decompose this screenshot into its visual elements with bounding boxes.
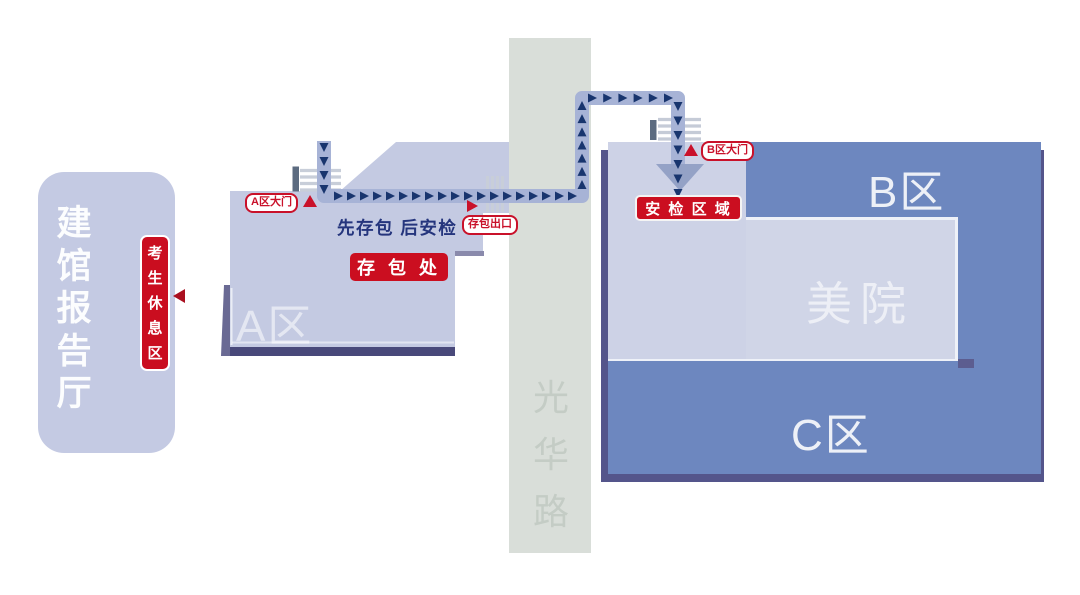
bag-exit-arrow-icon xyxy=(467,200,478,212)
zone-a-step-shadow xyxy=(455,251,484,256)
zone-b-gate-wall xyxy=(650,120,657,140)
zone-a-gate-wall xyxy=(293,167,300,192)
bag-storage-badge: 存 包 处 xyxy=(350,253,448,281)
security-area-badge: 安 检 区 域 xyxy=(635,195,742,221)
instruction-text: 先存包 后安检 xyxy=(337,215,457,240)
bag-exit-badge: 存包出口 xyxy=(462,215,518,235)
zone-a-gate-badge: A区大门 xyxy=(245,193,298,213)
exam-venue-map: 光华路 B区 C区 美院 建馆报告厅 考生休息区 xyxy=(0,0,1080,595)
map-graphics xyxy=(0,0,1080,595)
zone-a-label: A区 xyxy=(236,290,313,354)
zone-b-gate-badge: B区大门 xyxy=(701,141,754,161)
zone-a-left-edge-shadow xyxy=(221,285,230,356)
zone-a-gate-arrow-icon xyxy=(303,195,317,207)
zone-b-gate-arrow-icon xyxy=(684,144,698,156)
